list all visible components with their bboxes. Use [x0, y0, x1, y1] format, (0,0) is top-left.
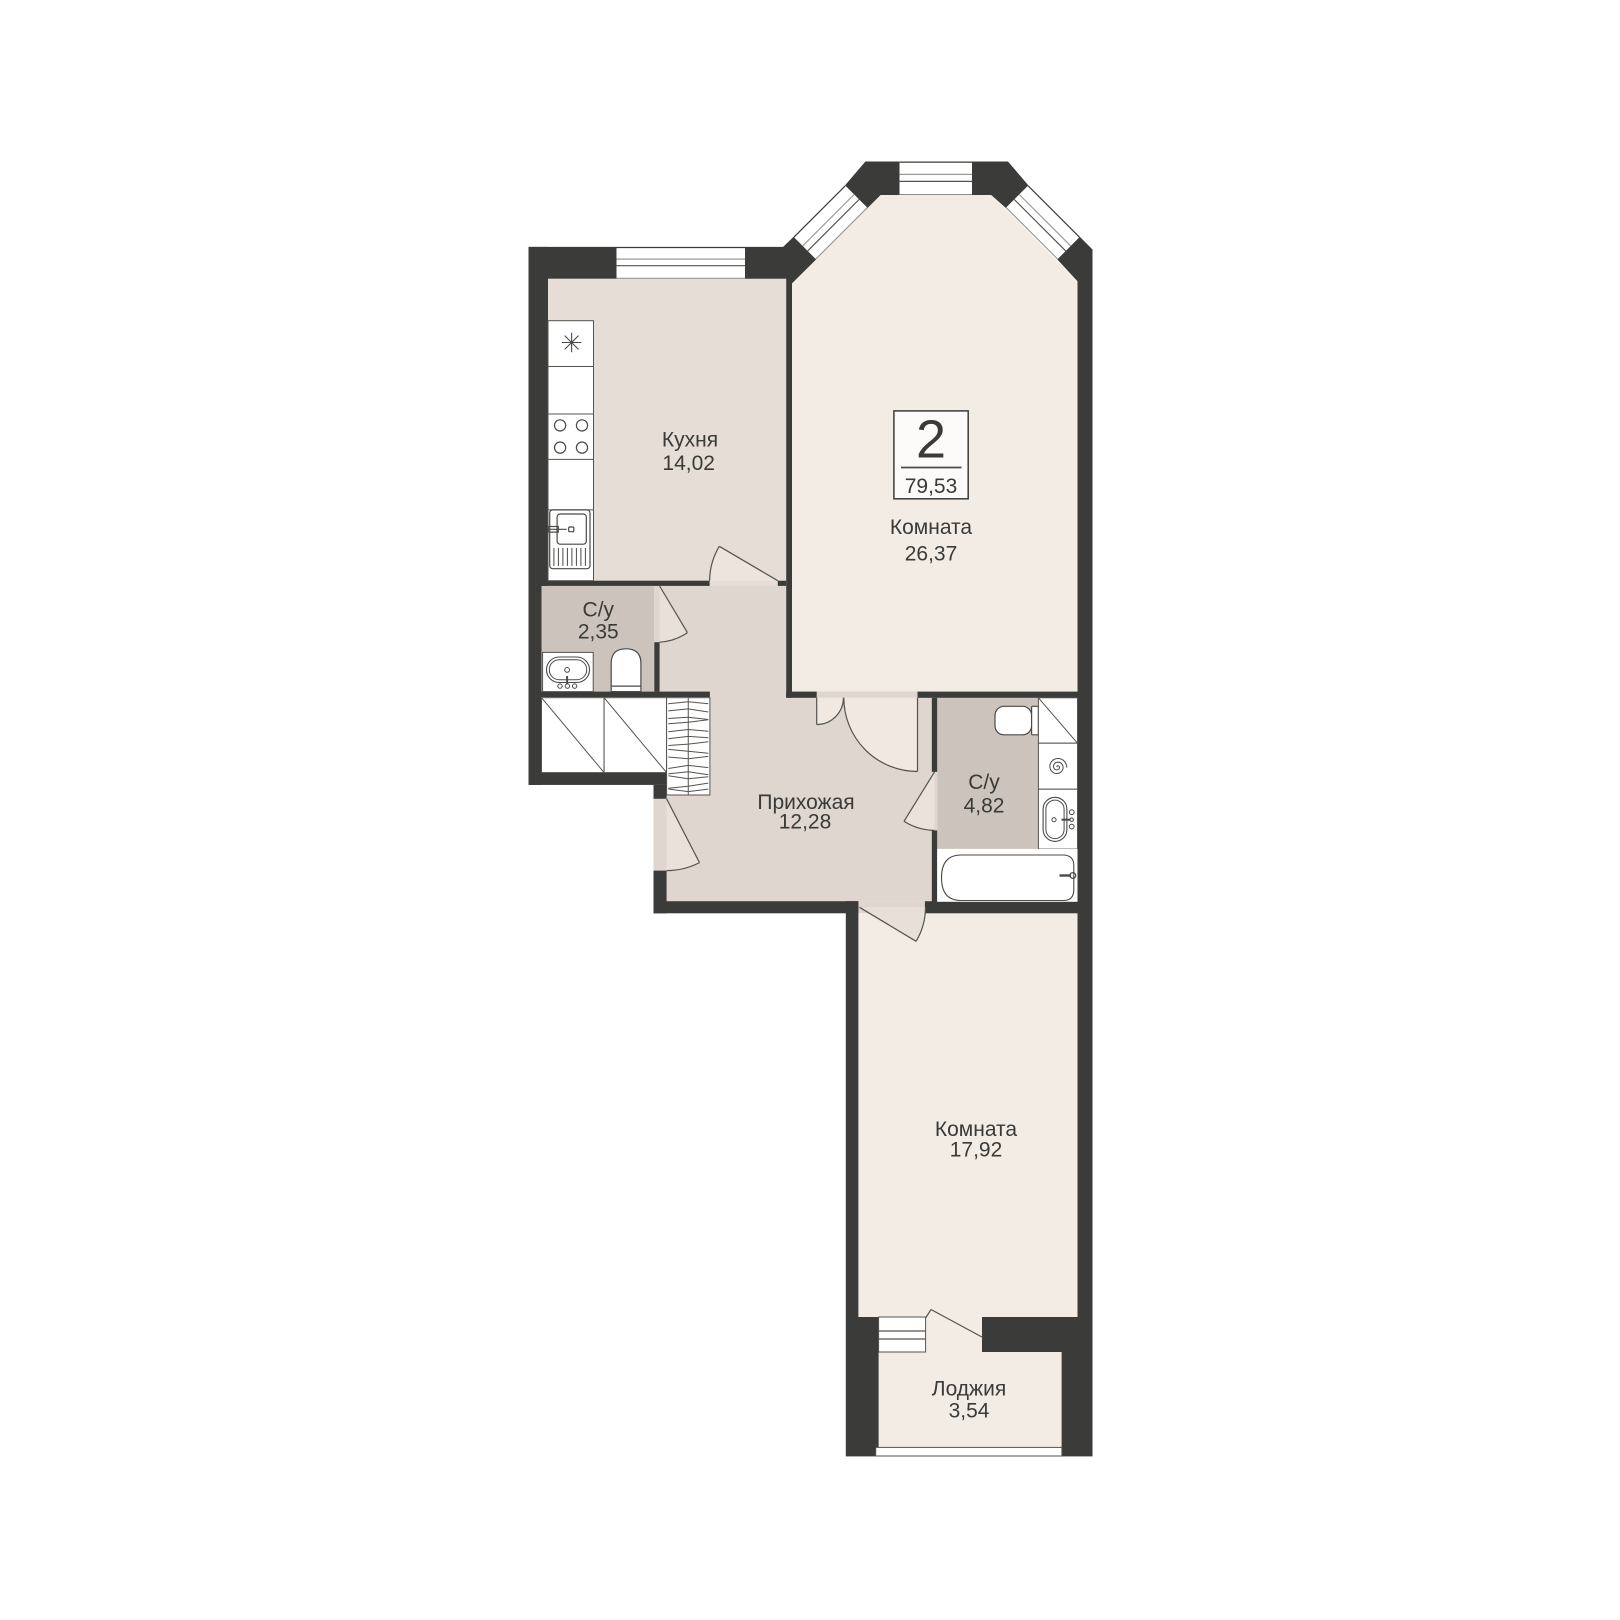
svg-text:С/у: С/у [968, 771, 1000, 794]
svg-text:Комната: Комната [890, 516, 973, 539]
svg-text:Лоджия: Лоджия [932, 1378, 1006, 1401]
svg-text:12,28: 12,28 [779, 811, 832, 834]
svg-text:14,02: 14,02 [662, 452, 715, 475]
svg-text:79,53: 79,53 [905, 475, 958, 498]
svg-text:2,35: 2,35 [578, 621, 619, 644]
svg-text:3,54: 3,54 [949, 1400, 990, 1423]
svg-text:Кухня: Кухня [662, 429, 718, 452]
svg-text:С/у: С/у [583, 599, 615, 622]
svg-text:26,37: 26,37 [905, 543, 958, 566]
svg-text:17,92: 17,92 [950, 1139, 1003, 1162]
svg-text:4,82: 4,82 [964, 795, 1005, 818]
svg-text:2: 2 [916, 409, 946, 469]
